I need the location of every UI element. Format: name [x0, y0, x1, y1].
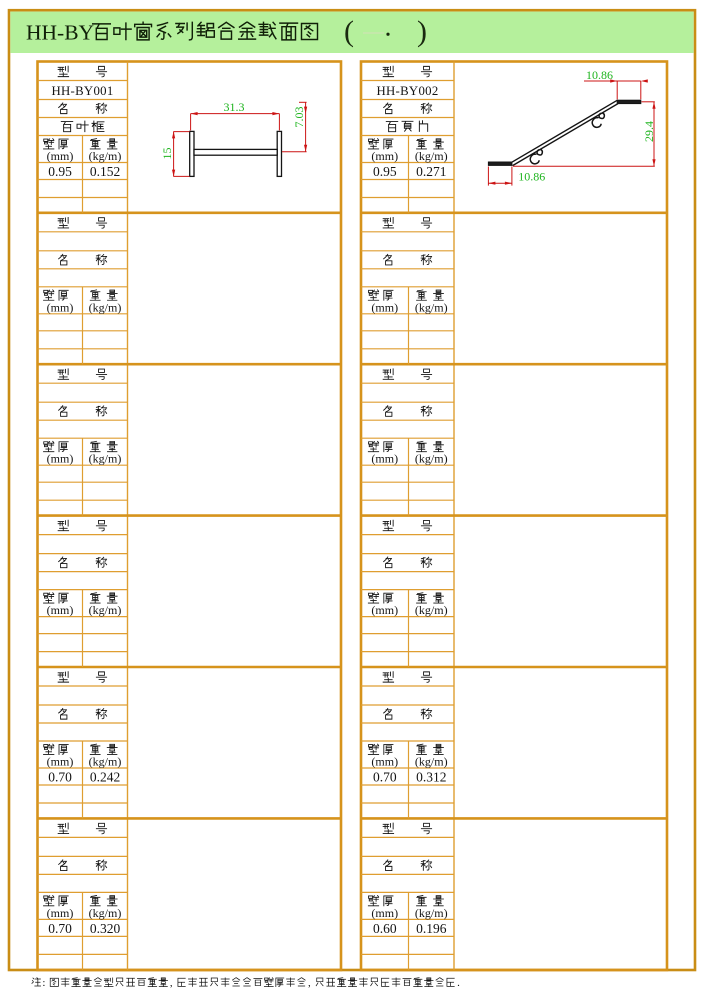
svg-text::: : [42, 977, 45, 989]
svg-text:(kg/m): (kg/m) [415, 300, 448, 314]
svg-text:0.60: 0.60 [373, 921, 397, 936]
svg-text:HH-BY002: HH-BY002 [376, 84, 438, 98]
svg-text:(mm): (mm) [371, 755, 398, 769]
svg-text:(kg/m): (kg/m) [89, 755, 122, 769]
svg-text:29.4: 29.4 [642, 121, 656, 142]
svg-text:(mm): (mm) [371, 906, 398, 920]
svg-text:(kg/m): (kg/m) [89, 906, 122, 920]
svg-text:0.70: 0.70 [48, 921, 72, 936]
svg-text:,: , [308, 977, 311, 989]
svg-text:(kg/m): (kg/m) [89, 149, 122, 163]
svg-text:0.196: 0.196 [416, 921, 447, 936]
svg-text:HH-BY: HH-BY [26, 21, 94, 45]
svg-text:(mm): (mm) [47, 452, 74, 466]
svg-text:10.86: 10.86 [518, 170, 545, 184]
svg-text:0.95: 0.95 [48, 164, 72, 179]
svg-text:(mm): (mm) [47, 906, 74, 920]
svg-text:(mm): (mm) [371, 603, 398, 617]
svg-text:(kg/m): (kg/m) [89, 603, 122, 617]
svg-text:0.312: 0.312 [416, 770, 446, 785]
svg-text:,: , [170, 977, 173, 989]
svg-text:(kg/m): (kg/m) [415, 603, 448, 617]
svg-text:(mm): (mm) [371, 452, 398, 466]
svg-text:(mm): (mm) [371, 149, 398, 163]
svg-text:(: ( [344, 15, 354, 48]
svg-text:0.70: 0.70 [373, 770, 397, 785]
svg-text:): ) [417, 15, 427, 48]
svg-text:(kg/m): (kg/m) [415, 906, 448, 920]
svg-text:(kg/m): (kg/m) [415, 452, 448, 466]
svg-text:(mm): (mm) [371, 300, 398, 314]
svg-text:0.152: 0.152 [90, 164, 120, 179]
svg-text:.: . [457, 977, 460, 989]
svg-text:(kg/m): (kg/m) [89, 300, 122, 314]
svg-text:(mm): (mm) [47, 149, 74, 163]
svg-text:15: 15 [160, 148, 174, 160]
svg-text:0.242: 0.242 [90, 770, 120, 785]
svg-text:31.3: 31.3 [224, 100, 245, 114]
svg-text:(mm): (mm) [47, 300, 74, 314]
svg-text:(mm): (mm) [47, 755, 74, 769]
svg-text:0.70: 0.70 [48, 770, 72, 785]
svg-text:7.03: 7.03 [292, 107, 306, 128]
svg-text:(kg/m): (kg/m) [415, 149, 448, 163]
svg-text:0.271: 0.271 [416, 164, 446, 179]
svg-text:0.95: 0.95 [373, 164, 397, 179]
svg-text:HH-BY001: HH-BY001 [51, 84, 113, 98]
svg-text:0.320: 0.320 [90, 921, 121, 936]
svg-text:(kg/m): (kg/m) [89, 452, 122, 466]
svg-text:10.86: 10.86 [586, 68, 613, 82]
svg-text:(mm): (mm) [47, 603, 74, 617]
svg-text:(kg/m): (kg/m) [415, 755, 448, 769]
